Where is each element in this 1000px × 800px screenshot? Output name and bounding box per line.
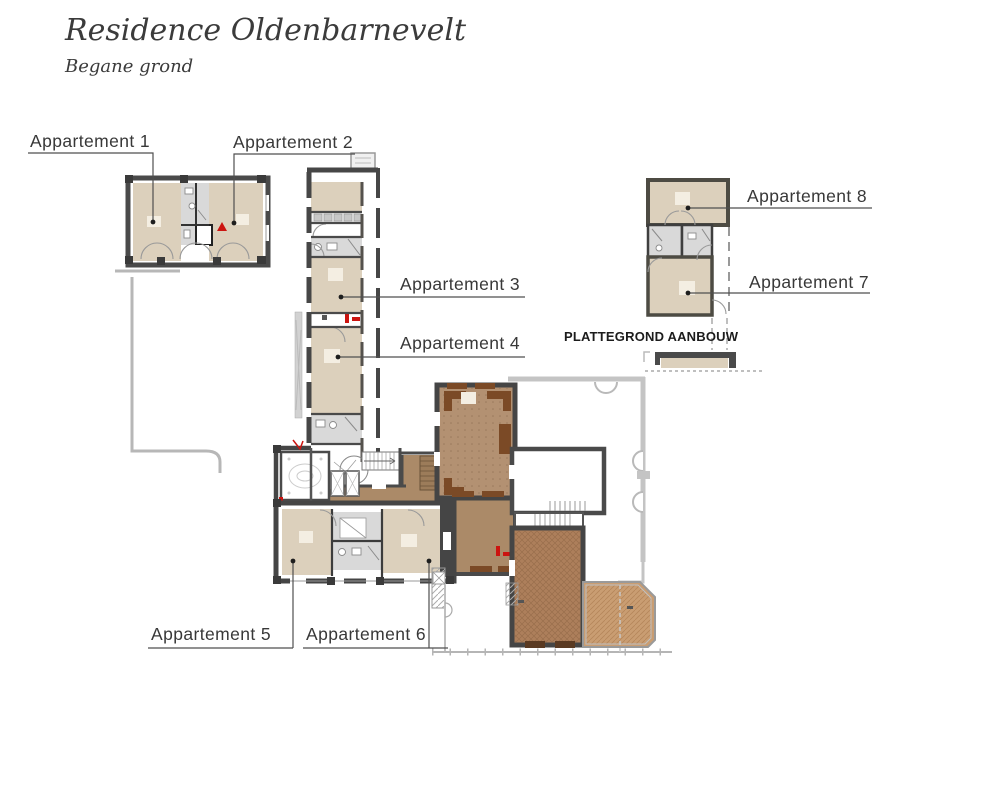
door-gap (434, 452, 440, 466)
fire-marker-icon (345, 314, 349, 323)
apartment-5-label: Appartement 5 (151, 624, 271, 644)
grand-salon (434, 383, 515, 498)
annex-bathroom (682, 225, 712, 257)
kitchen-appliance-icons (314, 214, 361, 221)
apartment-4-room (311, 327, 362, 414)
site-fence-line (115, 271, 220, 473)
leader-dot (232, 221, 237, 226)
bay-arc-icon (633, 492, 643, 512)
bay-floor-texture (586, 585, 651, 644)
header: Residence Oldenbarnevelt Begane grond (64, 13, 467, 77)
leader-dot (686, 291, 691, 296)
leader-dot (291, 559, 296, 564)
hall-floor (452, 513, 515, 573)
salon-floor-texture (515, 531, 580, 642)
annex-footprint-wall (729, 352, 736, 368)
hatched-wall-column (506, 583, 518, 605)
apartment-2-label: Appartement 2 (233, 132, 353, 152)
floor-patch (401, 534, 417, 547)
bay-arc-icon (595, 382, 617, 393)
floor-patch (461, 392, 476, 404)
bay-arc-icon (633, 451, 643, 471)
door-gap (372, 483, 386, 489)
annex-caption: PLATTEGROND AANBOUW (564, 329, 739, 344)
apartment-3-label: Appartement 3 (400, 274, 520, 294)
floor-plan-drawing: Residence Oldenbarnevelt Begane grond (0, 0, 1000, 800)
leader-dot (339, 295, 344, 300)
lintel (555, 641, 575, 648)
apartment-4-label: Appartement 4 (400, 333, 520, 353)
block-apartments-1-2 (115, 175, 269, 473)
sink-icon (688, 233, 696, 239)
annex-footprint-floor (661, 358, 728, 368)
fire-marker-icon (352, 317, 360, 321)
apartment-1-label: Appartement 1 (30, 131, 150, 151)
leader-dot (427, 559, 432, 564)
wing-block (295, 153, 378, 462)
wing-top-room (311, 182, 362, 212)
survey-mark (518, 600, 524, 603)
floor-patch (236, 214, 249, 225)
leader-dot (336, 355, 341, 360)
page-title: Residence Oldenbarnevelt (64, 13, 467, 48)
fire-marker-icon (496, 546, 500, 556)
floor-patch (328, 268, 343, 281)
shaft (322, 315, 327, 320)
wing-hall (311, 223, 362, 237)
survey-mark (627, 606, 633, 609)
annex-footprint-wall (658, 352, 735, 358)
apartment-7-label: Appartement 7 (749, 272, 869, 292)
apartment-3-room (311, 257, 362, 313)
door-gap (434, 412, 440, 426)
toilet-icon (339, 549, 346, 556)
sink-icon (184, 230, 190, 238)
floor-patch (675, 192, 690, 205)
annex-footprint-wall (655, 352, 660, 365)
apartment-6-label: Appartement 6 (306, 624, 426, 644)
sink-icon (185, 188, 193, 194)
northeast-room (509, 449, 604, 513)
existing-outline (618, 560, 643, 582)
lower-salon (509, 528, 655, 648)
floor-plan-page: Residence Oldenbarnevelt Begane grond (0, 0, 1000, 800)
northeast-room-walls (512, 449, 604, 513)
wing-bathroom (311, 414, 362, 444)
toilet-icon (189, 203, 195, 209)
door-niche (443, 532, 451, 550)
floor-patch (299, 531, 313, 543)
wc-cell (196, 225, 212, 245)
toilet-icon (330, 422, 337, 429)
door-swing-icon (445, 603, 452, 617)
leader-dot (686, 206, 691, 211)
page-subtitle: Begane grond (64, 56, 193, 77)
existing-pier (637, 471, 650, 479)
lintel (525, 641, 545, 648)
sink-icon (352, 548, 361, 555)
footprint-bracket (644, 352, 650, 362)
leader-dot (151, 220, 156, 225)
apartment-8-label: Appartement 8 (747, 186, 867, 206)
door-gap (509, 465, 515, 479)
sink-icon (327, 243, 337, 250)
door-gap (509, 560, 515, 576)
toilet-icon (656, 245, 662, 251)
sink-icon (316, 420, 325, 427)
entry-canopy (351, 153, 375, 169)
